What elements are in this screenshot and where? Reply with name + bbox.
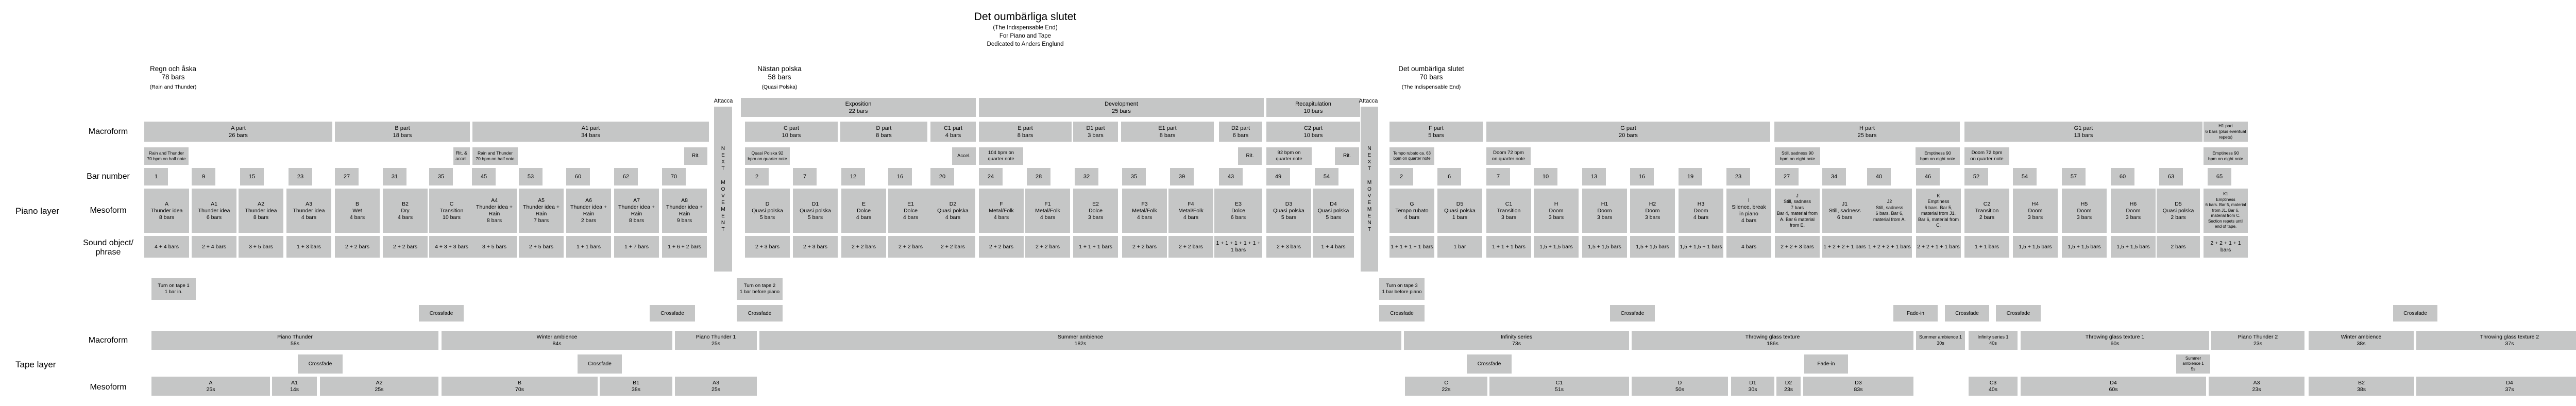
- mesoform-box: A4Thunder idea +Rain8 bars: [472, 189, 517, 233]
- mesoform-box: H3Doom4 bars: [1679, 189, 1723, 233]
- sound-phrase-box: 2 + 2 bars: [335, 236, 380, 258]
- crossfade-box: Crossfade: [1467, 354, 1512, 374]
- mesoform-box: E2Dolce3 bars: [1073, 189, 1118, 233]
- tape-mesoform-box: C151s: [1489, 377, 1629, 396]
- tape-macroform-box: Piano Thunder58s: [151, 331, 438, 350]
- mesoform-box: CTransition10 bars: [429, 189, 474, 233]
- sound-phrase-box: 1 + 4 bars: [1313, 236, 1354, 258]
- form-diagram: Det oumbärliga slutet (The Indispensable…: [0, 0, 2576, 406]
- part-box: H1 part6 bars (plus eventual repets): [2204, 122, 2248, 142]
- mesoform-box: J1Still, sadness6 bars: [1822, 189, 1867, 233]
- mesoform-box: H5Doom3 bars: [2062, 189, 2107, 233]
- row-label-piano-mesoform: Mesoform: [64, 206, 152, 215]
- mesoform-box: DQuasi polska5 bars: [745, 189, 790, 233]
- sound-phrase-box: 2 + 2 bars: [888, 236, 933, 258]
- sound-phrase-box: 3 + 5 bars: [472, 236, 517, 258]
- tempo-mark-box: Doom 72 bpmon quarter note: [1486, 147, 1531, 165]
- section-title: Det oumbärliga slutet: [1354, 65, 1509, 73]
- sound-phrase-box: 1,5 + 1,5 bars: [2013, 236, 2058, 258]
- tape-mesoform-box: D50s: [1632, 377, 1728, 396]
- sound-phrase-box: 4 + 3 + 3 bars: [429, 236, 474, 258]
- attacca-label: Attacca: [708, 98, 739, 104]
- mesoform-box: H6Doom3 bars: [2111, 189, 2156, 233]
- title-dedication: Dedicated to Anders Englund: [819, 40, 1231, 48]
- sound-phrase-box: 1,5 + 1,5 + 1 bars: [1679, 236, 1723, 258]
- part-box: C2 part10 bars: [1266, 122, 1360, 142]
- sound-phrase-box: 1 + 1 bars: [566, 236, 611, 258]
- sound-phrase-box: 2 + 3 bars: [1266, 236, 1311, 258]
- row-label-sound-object: Sound object/ phrase: [64, 239, 152, 257]
- mesoform-box: AThunder idea8 bars: [144, 189, 189, 233]
- bar-number-box: 65: [2208, 168, 2231, 185]
- mesoform-box: D5Quasi polska1 bars: [1437, 189, 1482, 233]
- bar-number-box: 2: [745, 168, 769, 185]
- bar-number-box: 46: [1916, 168, 1940, 185]
- bar-number-box: 1: [144, 168, 168, 185]
- tape-macroform-box: Summer ambience182s: [759, 331, 1401, 350]
- part-box: D2 part6 bars: [1219, 122, 1262, 142]
- next-movement-box: NEXTMOVEMENT: [714, 107, 732, 272]
- part-box: E part8 bars: [979, 122, 1072, 142]
- mesoform-box: J2Still, sadness6 bars. Bar 6, material …: [1867, 189, 1912, 233]
- sound-phrase-box: 2 + 2 + 3 bars: [1775, 236, 1820, 258]
- tempo-mark-box: Emptiness 90bpm on eight note: [1916, 147, 1960, 165]
- section-title: Nästan polska: [702, 65, 857, 73]
- sound-phrase-box: 2 bars: [2157, 236, 2200, 258]
- bar-number-box: 12: [841, 168, 865, 185]
- bar-number-box: 6: [1437, 168, 1461, 185]
- mesoform-box: E3Dolce6 bars: [1214, 189, 1262, 233]
- bar-number-box: 27: [1775, 168, 1799, 185]
- crossfade-box: Fade-in: [1893, 305, 1938, 322]
- part-box: A1 part34 bars: [472, 122, 709, 142]
- bar-number-box: 62: [614, 168, 638, 185]
- bar-number-box: 54: [1315, 168, 1338, 185]
- sound-phrase-box: 2 + 3 bars: [745, 236, 790, 258]
- tape-mesoform-box: D460s: [2021, 377, 2206, 396]
- sound-phrase-box: 1 bar: [1437, 236, 1482, 258]
- bar-number-box: 16: [888, 168, 912, 185]
- section-bars: 58 bars: [702, 73, 857, 81]
- mesoform-box: A7Thunder idea +Rain8 bars: [614, 189, 659, 233]
- crossfade-box: Summerambience 15s: [2176, 354, 2210, 374]
- section-bars: 70 bars: [1354, 73, 1509, 81]
- mesoform-box: H1Doom3 bars: [1582, 189, 1627, 233]
- sound-phrase-box: 1 + 1 + 1 bars: [1486, 236, 1531, 258]
- mesoform-box: F4Metal/Folk4 bars: [1168, 189, 1213, 233]
- mesoform-box: A3Thunder idea4 bars: [286, 189, 331, 233]
- bar-number-box: 20: [930, 168, 954, 185]
- mesoform-box: EDolce4 bars: [841, 189, 886, 233]
- row-label-bar-number: Bar number: [64, 172, 152, 181]
- sound-phrase-box: 1 + 1 bars: [1964, 236, 2009, 258]
- mesoform-box: A8Thunder idea +Rain9 bars: [662, 189, 707, 233]
- crossfade-box: Crossfade: [737, 305, 783, 322]
- section-bars: 78 bars: [96, 73, 250, 81]
- mesoform-box: K1Emptiness6 bars. Bar 5, material from …: [2204, 189, 2248, 233]
- bar-number-box: 60: [566, 168, 590, 185]
- bar-number-box: 40: [1867, 168, 1891, 185]
- sound-phrase-box: 1 + 7 bars: [614, 236, 659, 258]
- tape-mesoform-box: A225s: [320, 377, 438, 396]
- turn-on-tape-box: Turn on tape 21 bar before piano: [737, 278, 783, 300]
- bar-number-box: 31: [383, 168, 406, 185]
- tempo-mark-box: Rain and Thunder70 bpm on half note: [472, 147, 518, 165]
- bar-number-box: 45: [472, 168, 496, 185]
- bar-number-box: 35: [429, 168, 453, 185]
- bar-number-box: 34: [1822, 168, 1846, 185]
- crossfade-box: Crossfade: [1379, 305, 1425, 322]
- mesoform-box: ISilence, breakin piano4 bars: [1726, 189, 1771, 233]
- sound-phrase-box: 2 + 2 bars: [979, 236, 1024, 258]
- sound-phrase-box: 2 + 2 bars: [1122, 236, 1167, 258]
- bar-number-box: 10: [1534, 168, 1557, 185]
- sound-phrase-box: 3 + 5 bars: [239, 236, 283, 258]
- mesoform-box: H2Doom3 bars: [1630, 189, 1675, 233]
- bar-number-box: 49: [1266, 168, 1290, 185]
- part-box: H part25 bars: [1774, 122, 1960, 142]
- bar-number-box: 60: [2111, 168, 2134, 185]
- tape-mesoform-box: A325s: [675, 377, 757, 396]
- bar-number-box: 53: [519, 168, 543, 185]
- tape-layer-label: Tape layer: [15, 360, 98, 369]
- macroform-top-box: Recapitulation10 bars: [1266, 98, 1360, 117]
- sound-phrase-box: 1 + 1 + 1 + 1 bars: [1389, 236, 1434, 258]
- title-translation: (The Indispensable End): [819, 24, 1231, 32]
- bar-number-box: 43: [1219, 168, 1243, 185]
- tape-macroform-box: Winter ambience84s: [442, 331, 672, 350]
- mesoform-box: GTempo rubato4 bars: [1389, 189, 1434, 233]
- bar-number-box: 19: [1679, 168, 1702, 185]
- section-title: Regn och åska: [96, 65, 250, 73]
- bar-number-box: 13: [1582, 168, 1606, 185]
- mesoform-box: C1Transition3 bars: [1486, 189, 1531, 233]
- tempo-mark-box: Tempo rubato ca. 63bpm on quarter note: [1389, 147, 1434, 165]
- mesoform-box: F1Metal/Folk4 bars: [1025, 189, 1070, 233]
- mesoform-box: D2Quasi polska4 bars: [930, 189, 975, 233]
- bar-number-box: 28: [1027, 168, 1050, 185]
- tape-macroform-box: Summer ambience 130s: [1916, 331, 1965, 350]
- tape-mesoform-box: A323s: [2209, 377, 2304, 396]
- part-box: F part5 bars: [1389, 122, 1483, 142]
- mesoform-box: BWet4 bars: [335, 189, 380, 233]
- turn-on-tape-box: Turn on tape 11 bar in.: [151, 278, 196, 300]
- tape-mesoform-box: C22s: [1405, 377, 1487, 396]
- section-header-2: Nästan polska58 bars(Quasi Polska): [702, 65, 857, 90]
- sound-phrase-box: 1 + 3 bars: [286, 236, 331, 258]
- section-translation: (The Indispensable End): [1354, 84, 1509, 90]
- tempo-mark-box: Rit.: [1238, 147, 1262, 165]
- sound-phrase-box: 2 + 3 bars: [793, 236, 838, 258]
- sound-phrase-box: 2 + 2 bars: [930, 236, 975, 258]
- tempo-mark-box: 92 bpm onquarter note: [1266, 147, 1312, 165]
- tape-mesoform-box: B138s: [600, 377, 672, 396]
- sound-phrase-box: 1 + 1 + 1 + 1 + 1 + 1 bars: [1214, 236, 1262, 258]
- tempo-mark-box: Quasi Polska 92bpm on quarter note: [745, 147, 790, 165]
- crossfade-box: Crossfade: [1996, 305, 2041, 322]
- bar-number-box: 32: [1075, 168, 1098, 185]
- tape-macroform-box: Infinity series 140s: [1969, 331, 2018, 350]
- bar-number-box: 16: [1630, 168, 1654, 185]
- sound-phrase-box: 4 bars: [1726, 236, 1771, 258]
- bar-number-box: 54: [2013, 168, 2037, 185]
- macroform-top-box: Development25 bars: [979, 98, 1264, 117]
- bar-number-box: 9: [192, 168, 215, 185]
- tape-mesoform-box: D437s: [2416, 377, 2576, 396]
- title-block: Det oumbärliga slutet (The Indispensable…: [819, 10, 1231, 48]
- sound-phrase-box: 1,5 + 1,5 bars: [1630, 236, 1675, 258]
- tempo-mark-box: Accel.: [952, 147, 976, 165]
- title-instrumentation: For Piano and Tape: [819, 32, 1231, 40]
- mesoform-box: JStill, sadness7 barsBar 4, material fro…: [1775, 189, 1820, 233]
- section-translation: (Quasi Polska): [702, 84, 857, 90]
- sound-phrase-box: 2 + 5 bars: [519, 236, 564, 258]
- tape-mesoform-box: B70s: [442, 377, 598, 396]
- mesoform-box: D4Quasi polska5 bars: [1313, 189, 1354, 233]
- sound-phrase-box: 1,5 + 1,5 bars: [1534, 236, 1579, 258]
- part-box: A part26 bars: [144, 122, 332, 142]
- row-label-piano-macroform: Macroform: [64, 127, 152, 137]
- next-movement-box: NEXTMOVEMENT: [1361, 107, 1378, 272]
- sound-phrase-box: 2 + 2 + 1 + 1 bars: [1916, 236, 1961, 258]
- mesoform-box: E1Dolce4 bars: [888, 189, 933, 233]
- tape-mesoform-box: A25s: [151, 377, 270, 396]
- tape-mesoform-box: A114s: [272, 377, 317, 396]
- bar-number-box: 23: [1726, 168, 1750, 185]
- tape-macroform-box: Infinity series73s: [1404, 331, 1629, 350]
- mesoform-box: A2Thunder idea8 bars: [239, 189, 283, 233]
- macroform-top-box: Exposition22 bars: [741, 98, 976, 117]
- tempo-mark-box: Rit.: [1335, 147, 1359, 165]
- crossfade-box: Crossfade: [650, 305, 695, 322]
- bar-number-box: 7: [793, 168, 817, 185]
- bar-number-box: 7: [1486, 168, 1510, 185]
- turn-on-tape-box: Turn on tape 31 bar before piano: [1379, 278, 1425, 300]
- sound-phrase-box: 1 + 2 + 2 + 1 bars: [1867, 236, 1912, 258]
- row-label-tape-macroform: Macroform: [64, 336, 152, 345]
- mesoform-box: F3Metal/Folk4 bars: [1122, 189, 1167, 233]
- tempo-mark-box: Emptiness 90bpm on eight note: [2204, 147, 2248, 165]
- crossfade-box: Crossfade: [1945, 305, 1989, 322]
- sound-phrase-box: 4 + 4 bars: [144, 236, 189, 258]
- tape-mesoform-box: B238s: [2309, 377, 2414, 396]
- part-box: E1 part8 bars: [1121, 122, 1214, 142]
- tape-macroform-box: Piano Thunder 223s: [2211, 331, 2304, 350]
- bar-number-box: 27: [335, 168, 359, 185]
- bar-number-box: 63: [2159, 168, 2183, 185]
- sound-phrase-box: 1 + 1 + 1 bars: [1073, 236, 1118, 258]
- mesoform-box: D3Quasi polska5 bars: [1266, 189, 1311, 233]
- mesoform-box: HDoom3 bars: [1534, 189, 1579, 233]
- page-title: Det oumbärliga slutet: [819, 10, 1231, 24]
- mesoform-box: B2Dry4 bars: [383, 189, 428, 233]
- mesoform-box: H4Doom3 bars: [2013, 189, 2058, 233]
- sound-phrase-box: 2 + 2 + 1 + 1 bars: [2204, 236, 2248, 258]
- attacca-label: Attacca: [1353, 98, 1384, 104]
- mesoform-box: D5Quasi polska2 bars: [2157, 189, 2200, 233]
- tape-mesoform-box: C340s: [1969, 377, 2018, 396]
- sound-phrase-box: 2 + 4 bars: [192, 236, 236, 258]
- sound-phrase-box: 1 + 6 + 2 bars: [662, 236, 707, 258]
- tempo-mark-box: Rit. &accel.: [453, 147, 470, 165]
- sound-phrase-box: 2 + 2 bars: [1025, 236, 1070, 258]
- mesoform-box: A1Thunder idea6 bars: [192, 189, 236, 233]
- tempo-mark-box: Doom 72 bpmon quarter note: [1964, 147, 2009, 165]
- tape-macroform-box: Winter ambience38s: [2309, 331, 2414, 350]
- sound-phrase-box: 2 + 2 bars: [841, 236, 886, 258]
- part-box: G1 part13 bars: [1964, 122, 2202, 142]
- tape-mesoform-box: D223s: [1776, 377, 1801, 396]
- row-label-tape-mesoform: Mesoform: [64, 383, 152, 392]
- part-box: D part8 bars: [840, 122, 927, 142]
- tape-mesoform-box: D383s: [1803, 377, 1913, 396]
- crossfade-box: Crossfade: [578, 354, 622, 374]
- section-header-1: Regn och åska78 bars(Rain and Thunder): [96, 65, 250, 90]
- crossfade-box: Crossfade: [298, 354, 343, 374]
- mesoform-box: C2Transition2 bars: [1964, 189, 2009, 233]
- tape-macroform-box: Throwing glass texture 237s: [2416, 331, 2576, 350]
- crossfade-box: Fade-in: [1804, 354, 1848, 374]
- tempo-mark-box: Rit.: [684, 147, 707, 165]
- sound-phrase-box: 1,5 + 1,5 bars: [2062, 236, 2107, 258]
- section-translation: (Rain and Thunder): [96, 84, 250, 90]
- tape-macroform-box: Throwing glass texture186s: [1632, 331, 1913, 350]
- mesoform-box: FMetal/Folk4 bars: [979, 189, 1024, 233]
- tempo-mark-box: Rain and Thunder70 bpm on half note: [144, 147, 189, 165]
- tempo-mark-box: Still, sadness 90bpm on eight note: [1775, 147, 1820, 165]
- part-box: C part10 bars: [745, 122, 838, 142]
- mesoform-box: A5Thunder idea +Rain7 bars: [519, 189, 564, 233]
- part-box: C1 part4 bars: [930, 122, 976, 142]
- tempo-mark-box: 104 bpm onquarter note: [979, 147, 1023, 165]
- bar-number-box: 57: [2062, 168, 2086, 185]
- part-box: B part18 bars: [335, 122, 470, 142]
- crossfade-box: Crossfade: [2393, 305, 2437, 322]
- bar-number-box: 52: [1964, 168, 1988, 185]
- bar-number-box: 2: [1389, 168, 1413, 185]
- tape-macroform-box: Piano Thunder 125s: [675, 331, 757, 350]
- tape-macroform-box: Throwing glass texture 160s: [2021, 331, 2209, 350]
- bar-number-box: 24: [979, 168, 1003, 185]
- sound-phrase-box: 1,5 + 1,5 bars: [2111, 236, 2156, 258]
- part-box: D1 part3 bars: [1073, 122, 1118, 142]
- part-box: G part20 bars: [1486, 122, 1770, 142]
- section-header-3: Det oumbärliga slutet70 bars(The Indispe…: [1354, 65, 1509, 90]
- crossfade-box: Crossfade: [1610, 305, 1655, 322]
- sound-phrase-box: 2 + 2 bars: [1168, 236, 1213, 258]
- bar-number-box: 15: [240, 168, 264, 185]
- bar-number-box: 35: [1122, 168, 1146, 185]
- mesoform-box: KEmptiness6 bars. Bar 5, material from J…: [1916, 189, 1961, 233]
- bar-number-box: 70: [662, 168, 686, 185]
- bar-number-box: 39: [1170, 168, 1194, 185]
- sound-phrase-box: 2 + 2 bars: [383, 236, 428, 258]
- mesoform-box: A6Thunder idea +Rain2 bars: [566, 189, 611, 233]
- tape-mesoform-box: D130s: [1731, 377, 1774, 396]
- crossfade-box: Crossfade: [419, 305, 464, 322]
- mesoform-box: D1Quasi polska5 bars: [793, 189, 838, 233]
- sound-phrase-box: 1,5 + 1,5 bars: [1582, 236, 1627, 258]
- sound-phrase-box: 1 + 2 + 2 + 1 bars: [1822, 236, 1867, 258]
- bar-number-box: 23: [289, 168, 312, 185]
